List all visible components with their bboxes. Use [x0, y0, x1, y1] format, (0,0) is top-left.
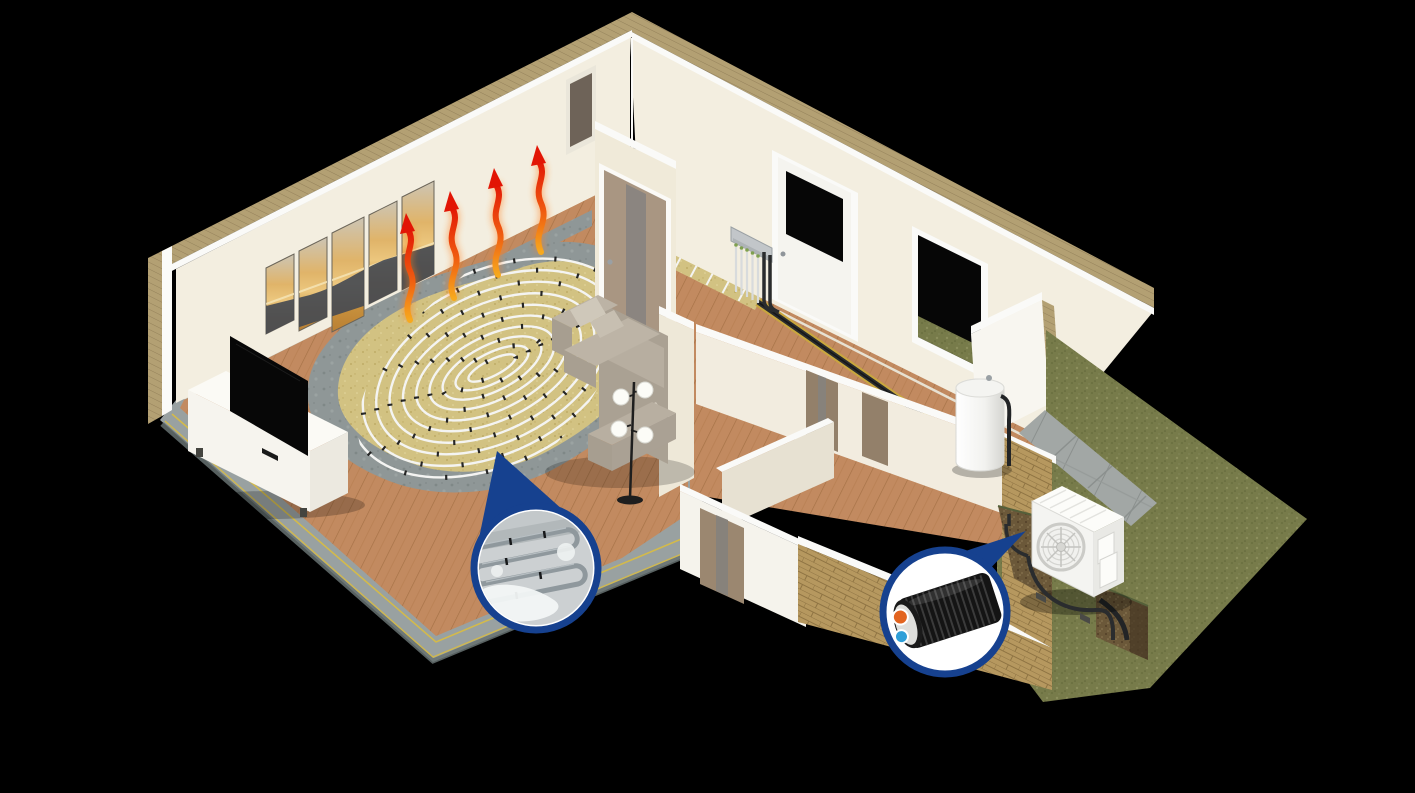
wardrobe-panel	[862, 392, 888, 466]
door-handle	[781, 252, 786, 257]
lamp-globe	[613, 389, 629, 405]
interior-door-handle	[607, 259, 612, 264]
wood-door-panel-center	[716, 515, 728, 596]
vestibule-door	[566, 65, 596, 155]
console-leg	[196, 448, 203, 457]
tank-valve	[986, 375, 992, 381]
lamp-globe	[637, 427, 653, 443]
wall-left-cut-edge	[148, 251, 162, 424]
wall-left-cut-cap	[162, 246, 172, 416]
lamp-globe	[637, 382, 653, 398]
illustration-canvas	[0, 0, 1415, 793]
fan-grille	[1038, 524, 1084, 570]
water-buffer-tank	[952, 375, 1012, 478]
scene-house-heating-cutaway	[0, 0, 1415, 793]
tank-top	[956, 379, 1004, 397]
lamp-globe	[611, 421, 627, 437]
lamp-base	[617, 496, 643, 505]
interior-door-panel	[626, 184, 646, 330]
console-leg	[300, 508, 307, 517]
